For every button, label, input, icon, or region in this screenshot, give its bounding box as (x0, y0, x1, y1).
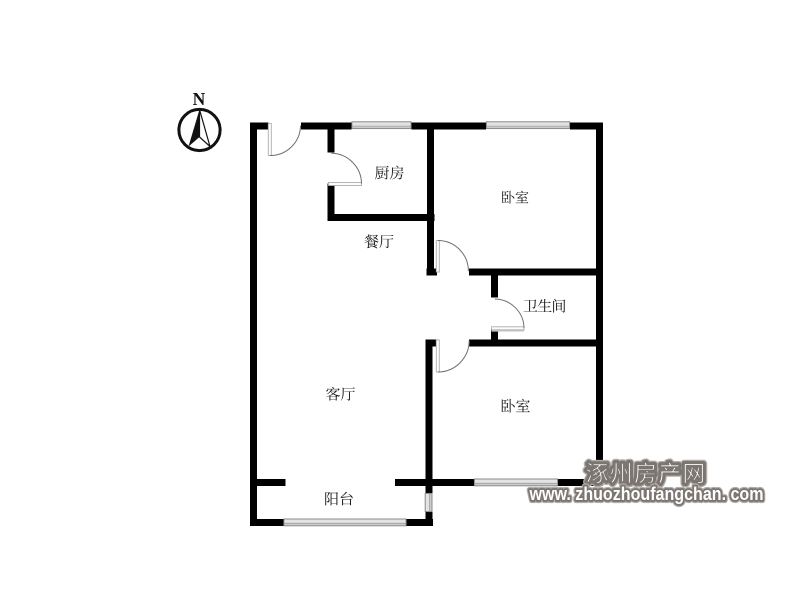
svg-text:N: N (193, 89, 206, 109)
svg-text:www. zhuozhoufangchan. com: www. zhuozhoufangchan. com (529, 484, 764, 504)
